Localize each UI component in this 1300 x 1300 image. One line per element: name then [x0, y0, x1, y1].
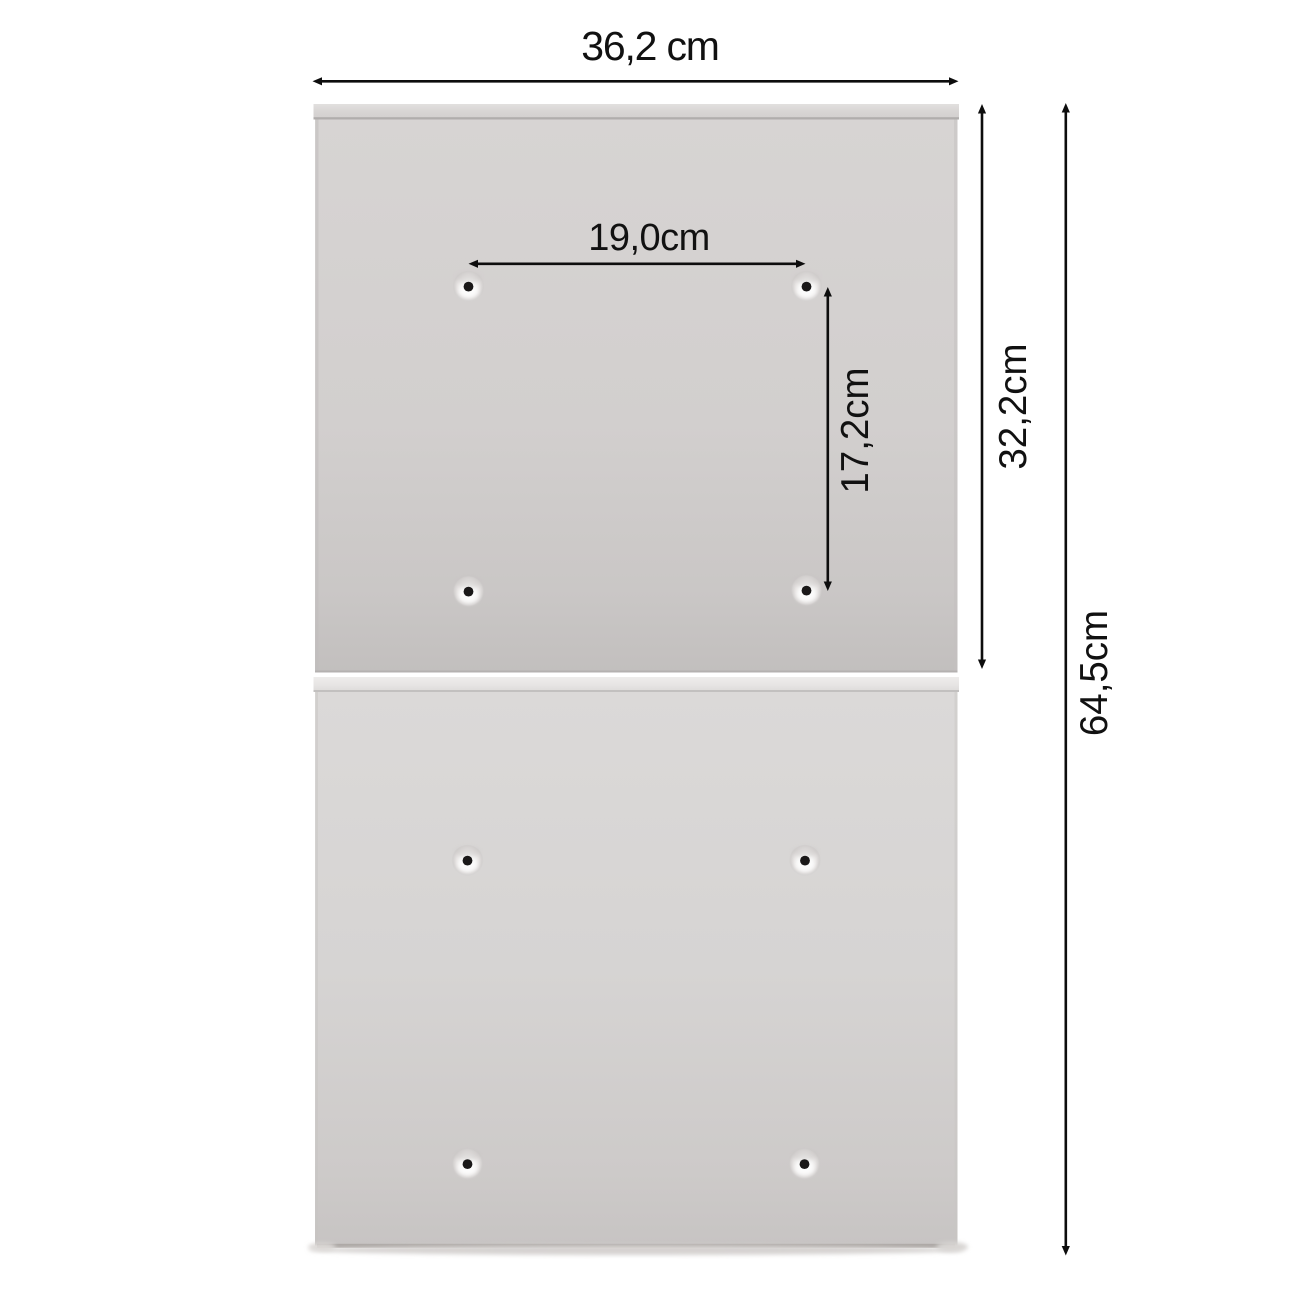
- svg-text:64,5cm: 64,5cm: [1073, 610, 1116, 736]
- svg-text:19,0cm: 19,0cm: [588, 217, 710, 259]
- svg-text:36,2 cm: 36,2 cm: [581, 23, 718, 69]
- svg-text:32,2cm: 32,2cm: [992, 343, 1035, 469]
- svg-text:17,2cm: 17,2cm: [834, 367, 877, 493]
